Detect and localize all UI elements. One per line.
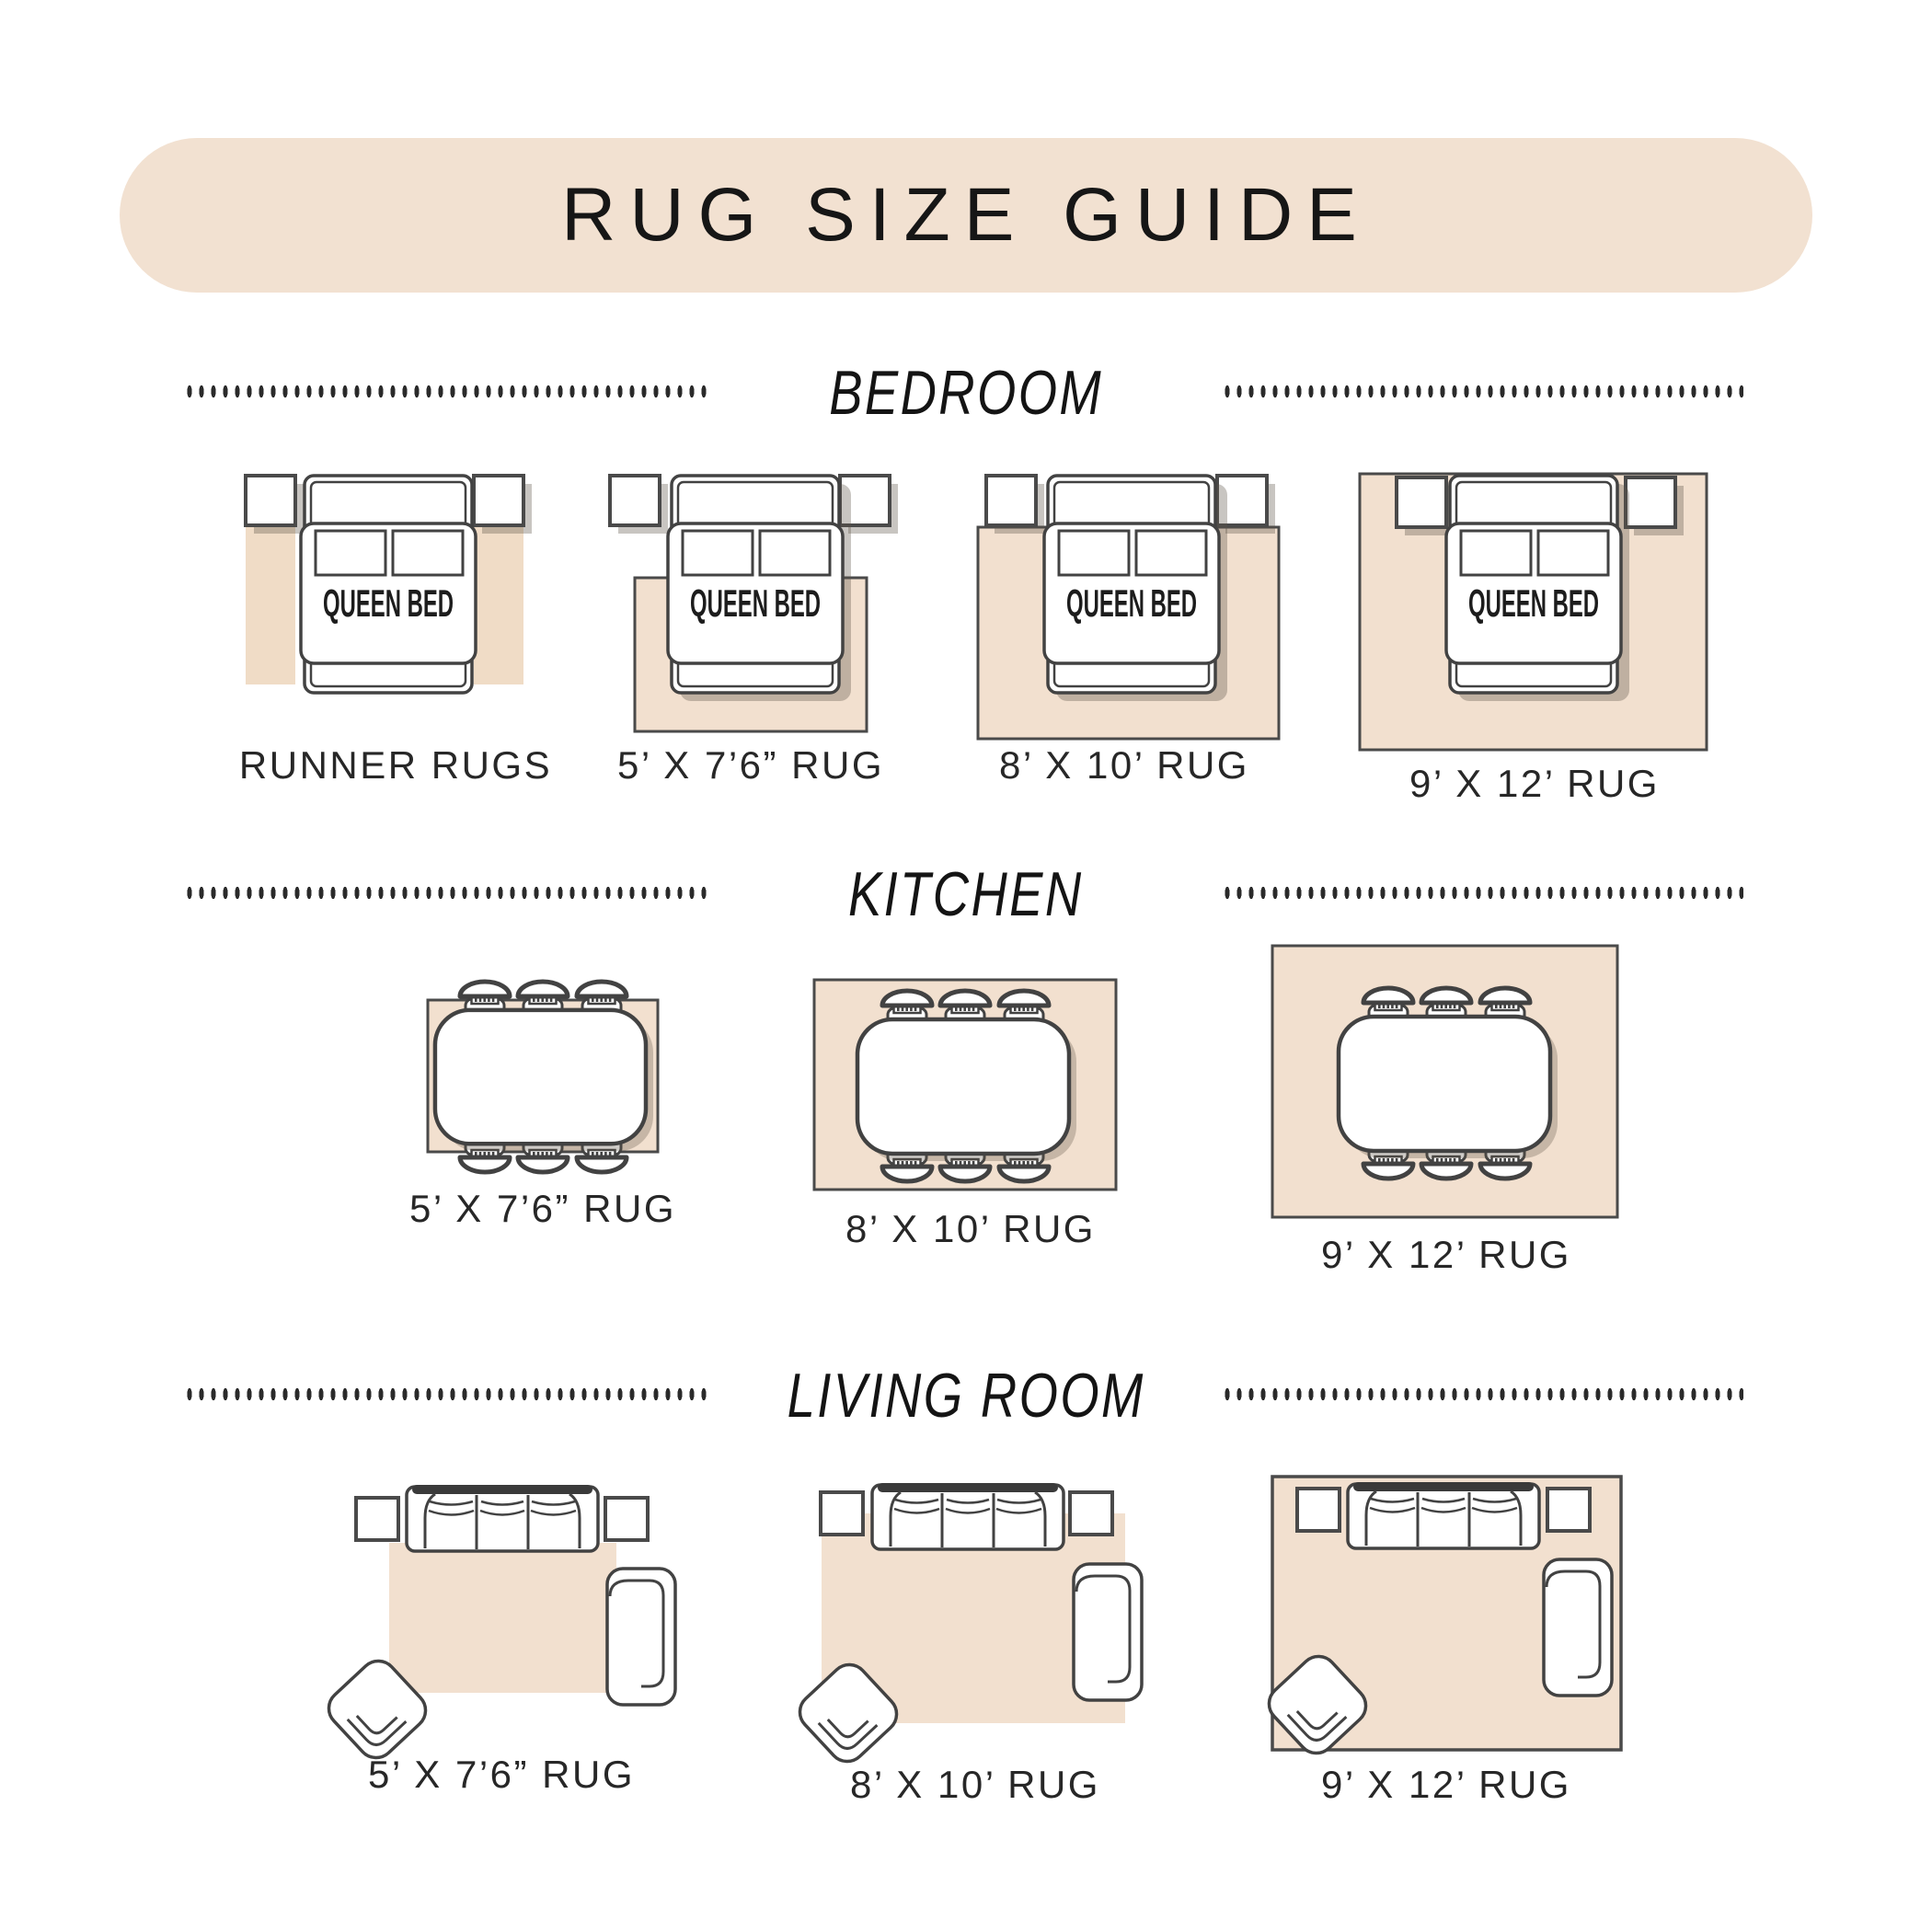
nightstand — [474, 476, 532, 534]
side-table — [1070, 1492, 1112, 1535]
rug — [389, 1543, 616, 1693]
side-table — [605, 1498, 648, 1540]
rug-label-living-9x12: 9’ X 12’ RUG — [1321, 1763, 1571, 1807]
queen-bed-label: QUEEN BED — [323, 581, 454, 625]
rug-label-bedroom-5x76: 5’ X 7’6” RUG — [617, 743, 884, 788]
dining-table — [435, 1010, 653, 1151]
rug-label-living-5x76: 5’ X 7’6” RUG — [368, 1753, 635, 1797]
kitchen-section-title: KITCHEN — [0, 858, 1932, 930]
queen-bed-label: QUEEN BED — [690, 581, 821, 625]
kitchen-diagram-8x10 — [810, 957, 1127, 1214]
chaise-lounge — [607, 1569, 675, 1705]
bedroom-section-title: BEDROOM — [0, 357, 1932, 429]
nightstand — [986, 476, 1044, 534]
living-room-section-title: LIVING ROOM — [0, 1360, 1932, 1432]
kitchen-diagram-9x12 — [1270, 934, 1633, 1237]
sofa — [872, 1483, 1064, 1549]
header-banner: RUG SIZE GUIDE — [120, 138, 1812, 293]
side-table — [1297, 1489, 1340, 1531]
bedroom-diagram-9x12: QUEEN BED — [1352, 451, 1720, 764]
queen-bed-label: QUEEN BED — [1066, 581, 1197, 625]
queen-bed-label: QUEEN BED — [1468, 581, 1599, 625]
dining-table — [857, 1019, 1076, 1161]
bedroom-diagram-5x76: QUEEN BED — [598, 460, 929, 745]
rug-label-kitchen-8x10: 8’ X 10’ RUG — [845, 1207, 1096, 1251]
rug-label-living-8x10: 8’ X 10’ RUG — [850, 1763, 1100, 1807]
rug-size-guide-page: RUG SIZE GUIDE BEDROOM QUEEN BED RUNNER … — [0, 0, 1932, 1932]
page-title: RUG SIZE GUIDE — [561, 172, 1371, 259]
sofa — [407, 1485, 598, 1551]
sofa — [1348, 1482, 1539, 1548]
chaise-lounge — [1074, 1564, 1142, 1700]
bedroom-diagram-runner-rugs: QUEEN BED — [221, 460, 552, 708]
nightstand — [1626, 477, 1684, 535]
chaise-lounge — [1544, 1559, 1612, 1696]
rug-label-runner: RUNNER RUGS — [239, 743, 552, 788]
rug-label-kitchen-5x76: 5’ X 7’6” RUG — [409, 1187, 676, 1231]
rug-label-kitchen-9x12: 9’ X 12’ RUG — [1321, 1233, 1571, 1277]
kitchen-diagram-5x76 — [419, 971, 676, 1191]
side-table — [821, 1492, 863, 1535]
rug-label-bedroom-9x12: 9’ X 12’ RUG — [1409, 762, 1660, 806]
side-table — [1547, 1489, 1590, 1531]
side-table — [356, 1498, 398, 1540]
bedroom-diagram-8x10: QUEEN BED — [971, 460, 1302, 754]
nightstand — [246, 476, 304, 534]
nightstand — [1397, 477, 1455, 535]
nightstand — [610, 476, 668, 534]
dining-table — [1339, 1017, 1558, 1158]
rug-label-bedroom-8x10: 8’ X 10’ RUG — [999, 743, 1249, 788]
